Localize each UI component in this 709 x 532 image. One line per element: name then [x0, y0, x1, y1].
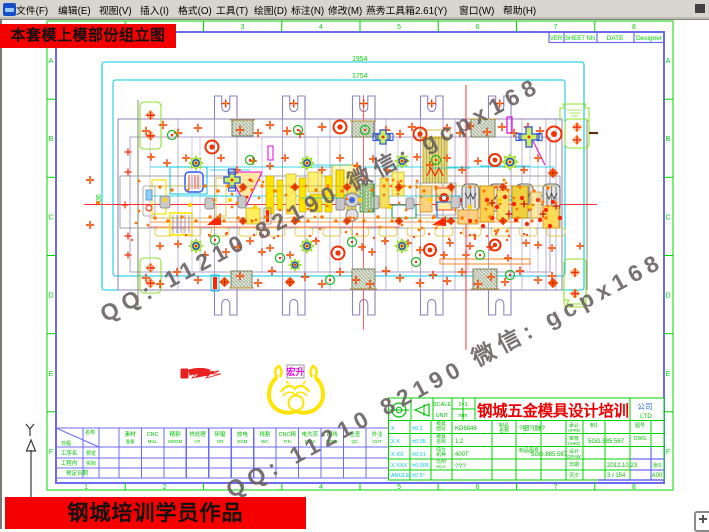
svg-text:外注: 外注 — [372, 430, 384, 438]
svg-text:±0.01: ±0.01 — [412, 452, 426, 458]
svg-text:mm: mm — [458, 413, 468, 419]
svg-text:1: 1 — [84, 484, 88, 491]
svg-text:5: 5 — [397, 484, 401, 491]
svg-text:B: B — [666, 136, 671, 143]
svg-text:EDM: EDM — [237, 439, 247, 444]
svg-text:7: 7 — [554, 484, 558, 491]
svg-text:工程内: 工程内 — [61, 459, 78, 467]
svg-text:工序名: 工序名 — [61, 449, 78, 457]
svg-text:CNC: CNC — [147, 432, 159, 438]
svg-text:热处理: 热处理 — [189, 430, 206, 438]
svg-text:X.X: X.X — [391, 439, 400, 445]
svg-text:页次: 页次 — [569, 472, 579, 479]
svg-text:WC: WC — [261, 439, 269, 444]
svg-text:吨位: 吨位 — [436, 446, 446, 453]
svg-text:A: A — [49, 58, 54, 65]
svg-text:模具: 模具 — [436, 433, 446, 440]
svg-text:日程: 日程 — [61, 440, 71, 447]
svg-text:SCA: SCA — [436, 464, 447, 470]
svg-text:DRAW: DRAW — [567, 454, 581, 459]
svg-text:HT: HT — [195, 439, 201, 444]
svg-text:预定日期: 预定日期 — [66, 469, 89, 477]
svg-text:F: F — [666, 449, 670, 456]
svg-text:精割: 精割 — [170, 430, 182, 438]
svg-text:制1: 制1 — [590, 422, 598, 429]
svg-text:1=1: 1=1 — [458, 402, 467, 408]
svg-text:6: 6 — [475, 24, 479, 31]
svg-text:实际: 实际 — [86, 460, 96, 467]
svg-text:放电: 放电 — [237, 430, 249, 438]
svg-text:400T: 400T — [455, 452, 469, 458]
svg-text:8: 8 — [632, 24, 636, 31]
svg-text:张S: 张S — [653, 462, 662, 469]
svg-text:研磨: 研磨 — [214, 430, 226, 438]
svg-text:WEDM: WEDM — [168, 439, 182, 444]
svg-text:1954: 1954 — [352, 56, 368, 63]
svg-text:预定: 预定 — [86, 450, 96, 457]
svg-text:名称: 名称 — [499, 427, 509, 434]
svg-text:机种: 机种 — [436, 451, 446, 458]
svg-text:C: C — [665, 214, 670, 221]
svg-text:DWG: DWG — [634, 436, 646, 442]
svg-text:素材: 素材 — [125, 430, 137, 438]
svg-text:E: E — [49, 371, 54, 378]
svg-text:OUT: OUT — [372, 439, 382, 444]
svg-text:8: 8 — [632, 484, 636, 491]
svg-text:5GG.885.567: 5GG.885.567 — [588, 439, 625, 445]
svg-text:C: C — [48, 214, 53, 221]
svg-text:SCALE: SCALE — [433, 402, 451, 408]
svg-text:3: 3 — [241, 24, 245, 31]
svg-text:3 / 154: 3 / 154 — [607, 473, 626, 479]
svg-text:线割: 线割 — [259, 430, 271, 438]
svg-text:X.XX: X.XX — [391, 452, 404, 458]
svg-text:F: F — [49, 449, 53, 456]
svg-text:ANGLE: ANGLE — [391, 473, 410, 479]
svg-text:APPD: APPD — [568, 428, 581, 433]
svg-text:宏升: 宏升 — [286, 366, 304, 377]
svg-text:Designer: Designer — [636, 35, 663, 42]
svg-text:DATE: DATE — [607, 35, 625, 42]
svg-text:KD6848: KD6848 — [455, 426, 477, 432]
svg-text:比例: 比例 — [436, 458, 446, 465]
svg-text:日期: 日期 — [569, 462, 579, 468]
svg-text:CNC精: CNC精 — [279, 430, 297, 438]
svg-text:LTD: LTD — [640, 413, 652, 420]
svg-text:MILL: MILL — [148, 439, 159, 444]
svg-text:图号: 图号 — [436, 426, 446, 432]
svg-text:准备: 准备 — [126, 438, 135, 445]
svg-text:7: 7 — [554, 24, 558, 31]
svg-text:2012.10.23: 2012.10.23 — [607, 463, 638, 469]
svg-text:图号: 图号 — [635, 423, 645, 429]
svg-text:±0.5°: ±0.5° — [412, 473, 425, 479]
svg-text:UNIT: UNIT — [436, 413, 449, 419]
svg-text:5: 5 — [397, 24, 401, 31]
svg-text:A00: A00 — [652, 473, 663, 479]
svg-text:D: D — [665, 293, 670, 300]
svg-text:钢城五金模具设计培训: 钢城五金模具设计培训 — [477, 401, 629, 420]
svg-text:A: A — [666, 58, 671, 65]
svg-text:5GG.885.567: 5GG.885.567 — [531, 452, 568, 458]
svg-text:4: 4 — [319, 24, 323, 31]
svg-text:B: B — [49, 136, 54, 143]
svg-text:1.2: 1.2 — [455, 439, 464, 445]
svg-text:±0.1: ±0.1 — [412, 426, 423, 432]
svg-text:±0.005: ±0.005 — [412, 463, 429, 469]
svg-text:?细?(脉?: ?细?(脉? — [519, 423, 545, 432]
svg-text:±0.05: ±0.05 — [412, 439, 426, 445]
svg-text:模具: 模具 — [436, 420, 446, 427]
svg-text:6: 6 — [475, 484, 479, 491]
svg-text:D: D — [48, 293, 53, 300]
svg-text:CHKD: CHKD — [568, 441, 582, 446]
svg-text:公司: 公司 — [638, 402, 653, 411]
svg-text:???: ??? — [455, 463, 466, 470]
svg-text:名称: 名称 — [436, 438, 446, 445]
svg-text:4: 4 — [319, 484, 323, 491]
svg-text:E: E — [666, 371, 671, 378]
svg-text:2: 2 — [162, 484, 166, 491]
svg-text:1754: 1754 — [352, 73, 368, 80]
svg-text:GR: GR — [217, 439, 225, 444]
svg-text:X: X — [391, 426, 395, 432]
svg-text:VER: VER — [550, 36, 563, 42]
svg-text:SHEET NN: SHEET NN — [565, 36, 595, 42]
svg-text:X.XXX: X.XXX — [391, 463, 408, 469]
svg-text:名称: 名称 — [85, 429, 95, 436]
